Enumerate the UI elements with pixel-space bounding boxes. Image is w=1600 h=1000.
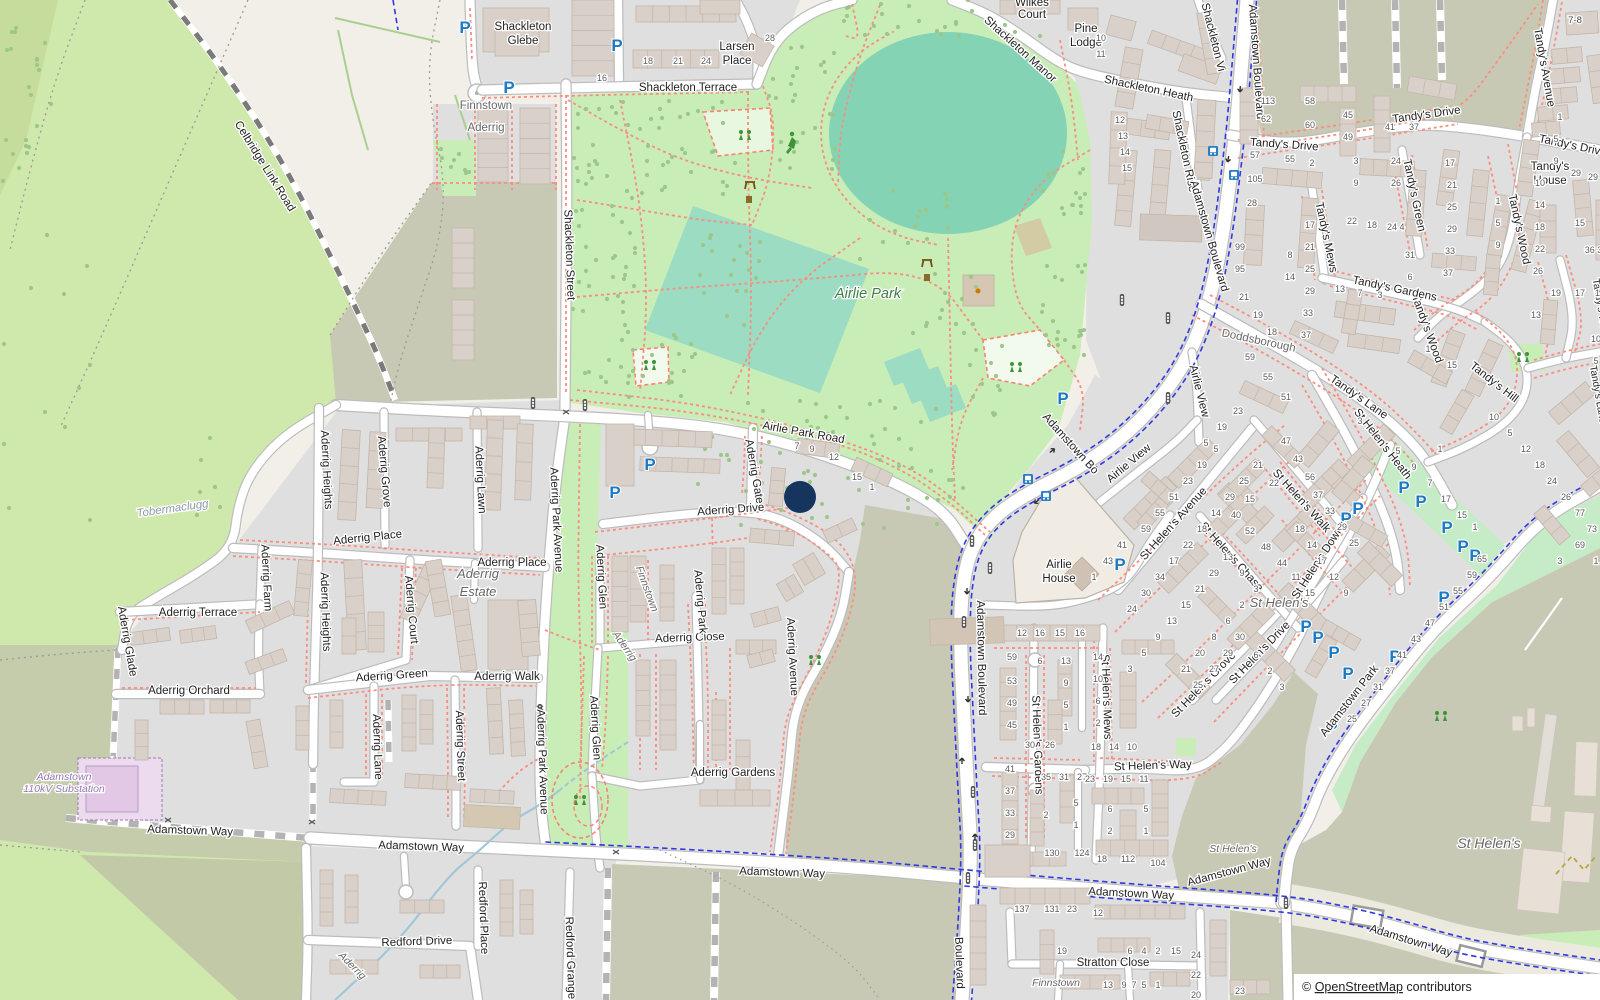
svg-text:29: 29 bbox=[1209, 568, 1219, 578]
svg-text:7: 7 bbox=[1131, 980, 1136, 990]
svg-text:Aderrig Walk: Aderrig Walk bbox=[474, 671, 540, 683]
svg-text:21: 21 bbox=[1181, 664, 1191, 674]
svg-text:19: 19 bbox=[1057, 946, 1067, 956]
svg-text:17: 17 bbox=[1305, 220, 1315, 230]
svg-text:21: 21 bbox=[1195, 584, 1205, 594]
svg-text:12: 12 bbox=[1521, 444, 1531, 454]
svg-text:55: 55 bbox=[1263, 372, 1273, 382]
svg-text:6: 6 bbox=[1037, 656, 1042, 666]
svg-text:69: 69 bbox=[1575, 540, 1585, 550]
svg-text:1: 1 bbox=[869, 482, 874, 492]
svg-text:Court: Court bbox=[1018, 9, 1047, 21]
svg-text:29: 29 bbox=[1005, 830, 1015, 840]
svg-text:29: 29 bbox=[1305, 286, 1315, 296]
svg-text:P: P bbox=[1441, 518, 1452, 537]
svg-text:29: 29 bbox=[1588, 172, 1598, 182]
svg-text:5: 5 bbox=[1213, 444, 1218, 454]
svg-text:29: 29 bbox=[1337, 522, 1347, 532]
svg-text:59: 59 bbox=[1467, 570, 1477, 580]
svg-text:15: 15 bbox=[1171, 946, 1181, 956]
svg-text:P: P bbox=[503, 78, 514, 97]
svg-text:22: 22 bbox=[1183, 540, 1193, 550]
svg-text:2: 2 bbox=[1107, 826, 1112, 836]
svg-text:22: 22 bbox=[1191, 970, 1201, 980]
svg-text:2: 2 bbox=[1267, 666, 1272, 676]
svg-text:40: 40 bbox=[1231, 510, 1241, 520]
svg-text:14: 14 bbox=[1109, 742, 1119, 752]
svg-text:St Helen's: St Helen's bbox=[1250, 595, 1309, 610]
svg-text:Aderrig: Aderrig bbox=[456, 566, 500, 581]
svg-text:55: 55 bbox=[1155, 508, 1165, 518]
svg-text:4: 4 bbox=[1399, 222, 1404, 232]
svg-text:12: 12 bbox=[1329, 572, 1339, 582]
svg-text:2: 2 bbox=[1095, 718, 1100, 728]
svg-text:P: P bbox=[1312, 628, 1323, 647]
svg-text:26: 26 bbox=[1561, 492, 1571, 502]
svg-text:14: 14 bbox=[1120, 147, 1130, 157]
svg-text:5: 5 bbox=[1063, 700, 1068, 710]
svg-text:37: 37 bbox=[1443, 268, 1453, 278]
svg-text:1: 1 bbox=[1143, 826, 1148, 836]
svg-text:Airlie: Airlie bbox=[1046, 559, 1072, 571]
svg-text:2: 2 bbox=[1239, 600, 1244, 610]
svg-text:St Helen's: St Helen's bbox=[1209, 843, 1257, 855]
svg-text:11: 11 bbox=[1096, 49, 1105, 59]
svg-text:131: 131 bbox=[1044, 904, 1059, 914]
svg-text:30: 30 bbox=[1141, 588, 1151, 598]
svg-text:18: 18 bbox=[1091, 742, 1101, 752]
svg-text:5: 5 bbox=[1203, 438, 1208, 448]
svg-text:3: 3 bbox=[1357, 416, 1362, 426]
svg-text:Larsen: Larsen bbox=[719, 41, 754, 53]
svg-text:28: 28 bbox=[765, 33, 775, 43]
svg-text:36 32: 36 32 bbox=[1585, 245, 1600, 255]
svg-text:24: 24 bbox=[1387, 222, 1397, 232]
svg-text:23: 23 bbox=[1235, 986, 1245, 996]
svg-text:15: 15 bbox=[1055, 628, 1065, 638]
svg-text:9: 9 bbox=[809, 444, 814, 454]
svg-text:1: 1 bbox=[1073, 820, 1078, 830]
svg-text:18: 18 bbox=[1267, 327, 1277, 337]
svg-text:15: 15 bbox=[1575, 218, 1585, 228]
svg-text:10: 10 bbox=[1127, 742, 1137, 752]
svg-text:95: 95 bbox=[1235, 264, 1245, 274]
svg-text:P: P bbox=[1457, 537, 1468, 556]
svg-text:P: P bbox=[1300, 617, 1311, 636]
svg-text:Place: Place bbox=[723, 55, 752, 67]
svg-text:24: 24 bbox=[701, 56, 711, 66]
svg-text:Pine: Pine bbox=[1074, 23, 1097, 35]
svg-text:14: 14 bbox=[1595, 288, 1600, 298]
svg-text:41: 41 bbox=[1385, 122, 1395, 132]
svg-text:25: 25 bbox=[1349, 538, 1359, 548]
svg-text:18: 18 bbox=[1535, 222, 1545, 232]
svg-text:15: 15 bbox=[1305, 588, 1315, 598]
svg-text:Aderrig: Aderrig bbox=[467, 122, 504, 134]
svg-text:35: 35 bbox=[1041, 772, 1051, 782]
svg-text:23: 23 bbox=[1067, 904, 1077, 914]
svg-text:5: 5 bbox=[1495, 218, 1500, 228]
svg-text:21: 21 bbox=[1239, 292, 1249, 302]
svg-text:3: 3 bbox=[1127, 664, 1132, 674]
svg-text:21: 21 bbox=[1253, 460, 1263, 470]
svg-text:9: 9 bbox=[1353, 178, 1358, 188]
svg-text:Adamstown Boulevard: Adamstown Boulevard bbox=[974, 600, 988, 715]
svg-text:9: 9 bbox=[1121, 980, 1126, 990]
svg-text:3: 3 bbox=[1377, 290, 1382, 300]
svg-text:13: 13 bbox=[1061, 656, 1071, 666]
svg-text:Shackleton: Shackleton bbox=[495, 21, 552, 33]
svg-text:16: 16 bbox=[1075, 628, 1085, 638]
svg-text:26: 26 bbox=[1045, 740, 1055, 750]
svg-text:10: 10 bbox=[1591, 334, 1600, 344]
svg-text:18: 18 bbox=[643, 56, 653, 66]
svg-text:7: 7 bbox=[1357, 288, 1362, 298]
svg-text:10: 10 bbox=[1093, 674, 1103, 684]
svg-text:6: 6 bbox=[1225, 616, 1230, 626]
svg-text:37: 37 bbox=[1409, 122, 1419, 132]
svg-text:St Helen's: St Helen's bbox=[1457, 835, 1520, 851]
svg-text:25: 25 bbox=[1305, 264, 1315, 274]
svg-text:13: 13 bbox=[1223, 552, 1233, 562]
svg-text:33: 33 bbox=[1303, 308, 1313, 318]
svg-text:29: 29 bbox=[1223, 648, 1233, 658]
svg-text:73: 73 bbox=[1587, 524, 1597, 534]
svg-text:30: 30 bbox=[1235, 632, 1245, 642]
svg-text:1: 1 bbox=[1495, 196, 1500, 206]
svg-text:10: 10 bbox=[1096, 33, 1106, 43]
svg-text:37: 37 bbox=[1301, 330, 1311, 340]
svg-text:13: 13 bbox=[1531, 310, 1541, 320]
svg-text:18: 18 bbox=[1097, 854, 1107, 864]
svg-text:37: 37 bbox=[1385, 666, 1395, 676]
svg-text:57: 57 bbox=[1250, 150, 1260, 160]
svg-text:17: 17 bbox=[1317, 556, 1327, 566]
svg-text:17: 17 bbox=[1441, 494, 1451, 504]
svg-text:3: 3 bbox=[1253, 584, 1258, 594]
svg-text:28: 28 bbox=[1247, 198, 1257, 208]
svg-text:3: 3 bbox=[1557, 556, 1562, 566]
svg-text:25: 25 bbox=[1447, 202, 1457, 212]
svg-text:Wilkes: Wilkes bbox=[1015, 0, 1049, 9]
svg-text:104: 104 bbox=[1150, 858, 1165, 868]
svg-text:3: 3 bbox=[1353, 156, 1358, 166]
svg-text:1: 1 bbox=[1472, 522, 1477, 532]
svg-text:19: 19 bbox=[1217, 422, 1227, 432]
svg-text:19: 19 bbox=[1197, 460, 1207, 470]
svg-text:23: 23 bbox=[1233, 406, 1243, 416]
svg-text:Estate: Estate bbox=[460, 584, 497, 599]
svg-text:21: 21 bbox=[1447, 180, 1457, 190]
svg-text:30: 30 bbox=[1025, 740, 1035, 750]
svg-text:27: 27 bbox=[1209, 664, 1219, 674]
svg-text:P: P bbox=[611, 36, 622, 55]
svg-text:2: 2 bbox=[1309, 158, 1314, 168]
svg-text:P: P bbox=[644, 455, 655, 474]
svg-text:23: 23 bbox=[1085, 774, 1095, 784]
svg-text:14: 14 bbox=[1211, 508, 1221, 518]
svg-text:14: 14 bbox=[1285, 272, 1295, 282]
svg-text:137: 137 bbox=[1014, 904, 1029, 914]
svg-text:18: 18 bbox=[1197, 524, 1207, 534]
svg-text:58: 58 bbox=[1305, 96, 1315, 106]
svg-text:41: 41 bbox=[1397, 650, 1407, 660]
svg-text:25: 25 bbox=[1347, 714, 1357, 724]
svg-text:14: 14 bbox=[1307, 540, 1317, 550]
svg-text:6: 6 bbox=[1407, 272, 1412, 282]
svg-text:13: 13 bbox=[1118, 131, 1128, 141]
svg-text:19: 19 bbox=[1103, 774, 1113, 784]
svg-text:Finnstown: Finnstown bbox=[460, 100, 512, 112]
svg-text:9: 9 bbox=[1553, 156, 1558, 166]
svg-text:25: 25 bbox=[1193, 680, 1203, 690]
svg-text:59: 59 bbox=[1141, 524, 1151, 534]
svg-text:45: 45 bbox=[1343, 110, 1353, 120]
svg-text:17: 17 bbox=[1575, 288, 1585, 298]
svg-text:5: 5 bbox=[1593, 356, 1598, 366]
svg-text:15: 15 bbox=[1245, 494, 1255, 504]
svg-text:Aderrig Close: Aderrig Close bbox=[655, 631, 725, 645]
svg-text:12: 12 bbox=[1115, 115, 1125, 125]
svg-text:9: 9 bbox=[1411, 462, 1416, 472]
svg-text:56: 56 bbox=[1305, 472, 1315, 482]
svg-text:49: 49 bbox=[1343, 132, 1353, 142]
svg-text:105: 105 bbox=[1247, 174, 1262, 184]
svg-text:8: 8 bbox=[1211, 632, 1216, 642]
svg-text:Boulevard: Boulevard bbox=[952, 937, 966, 989]
svg-text:23: 23 bbox=[1183, 476, 1193, 486]
svg-text:15: 15 bbox=[1447, 360, 1457, 370]
svg-text:29: 29 bbox=[1571, 168, 1581, 178]
svg-text:9: 9 bbox=[1063, 678, 1068, 688]
svg-text:P: P bbox=[1114, 555, 1125, 574]
svg-text:Airlie Park: Airlie Park bbox=[834, 286, 902, 302]
svg-text:31: 31 bbox=[1059, 772, 1069, 782]
svg-text:Aderrig Orchard: Aderrig Orchard bbox=[148, 685, 230, 697]
svg-text:41: 41 bbox=[1117, 540, 1127, 550]
svg-text:Stratton Close: Stratton Close bbox=[1077, 957, 1150, 969]
svg-text:37: 37 bbox=[1313, 490, 1323, 500]
svg-text:51: 51 bbox=[1169, 492, 1179, 502]
svg-text:22: 22 bbox=[1269, 478, 1279, 488]
svg-text:31: 31 bbox=[1405, 250, 1415, 260]
svg-text:7-8: 7-8 bbox=[1568, 15, 1582, 26]
svg-text:Redford Place: Redford Place bbox=[476, 881, 491, 954]
svg-text:15: 15 bbox=[1457, 510, 1467, 520]
svg-text:51: 51 bbox=[1439, 602, 1449, 612]
svg-text:124: 124 bbox=[1074, 848, 1089, 858]
svg-text:22: 22 bbox=[1535, 244, 1545, 254]
svg-text:14: 14 bbox=[1093, 652, 1103, 662]
svg-text:43: 43 bbox=[1293, 454, 1303, 464]
svg-text:59: 59 bbox=[1007, 652, 1017, 662]
svg-text:9: 9 bbox=[1239, 568, 1244, 578]
svg-text:Aderrig Terrace: Aderrig Terrace bbox=[159, 607, 237, 619]
svg-text:29: 29 bbox=[1225, 492, 1235, 502]
svg-text:Aderrig Street: Aderrig Street bbox=[453, 710, 467, 782]
svg-text:51: 51 bbox=[1281, 392, 1291, 402]
svg-text:21: 21 bbox=[673, 56, 683, 66]
svg-text:6: 6 bbox=[1127, 946, 1132, 956]
svg-text:27: 27 bbox=[1361, 698, 1371, 708]
svg-text:21: 21 bbox=[1305, 242, 1315, 252]
svg-text:7: 7 bbox=[794, 441, 799, 451]
svg-text:2: 2 bbox=[1155, 946, 1160, 956]
svg-text:P: P bbox=[1415, 492, 1426, 511]
svg-text:52: 52 bbox=[1245, 526, 1255, 536]
svg-text:1: 1 bbox=[1063, 722, 1068, 732]
svg-text:Redford Drive: Redford Drive bbox=[381, 935, 452, 949]
svg-text:62: 62 bbox=[1261, 114, 1271, 124]
svg-text:49: 49 bbox=[1007, 698, 1017, 708]
svg-text:45: 45 bbox=[1007, 720, 1017, 730]
svg-text:41: 41 bbox=[1005, 764, 1015, 774]
svg-text:6: 6 bbox=[1107, 804, 1112, 814]
svg-text:43: 43 bbox=[1411, 634, 1421, 644]
svg-text:5: 5 bbox=[1141, 648, 1146, 658]
svg-text:1: 1 bbox=[1425, 344, 1430, 354]
svg-text:12: 12 bbox=[829, 452, 839, 462]
svg-text:6: 6 bbox=[1095, 696, 1100, 706]
svg-text:13: 13 bbox=[1335, 284, 1345, 294]
svg-text:77: 77 bbox=[1575, 508, 1585, 518]
svg-text:P: P bbox=[1342, 664, 1353, 683]
svg-text:© OpenStreetMap contributors: © OpenStreetMap contributors bbox=[1302, 980, 1472, 994]
svg-text:53: 53 bbox=[1007, 676, 1017, 686]
svg-text:55: 55 bbox=[1285, 154, 1295, 164]
svg-text:34: 34 bbox=[1155, 572, 1165, 582]
svg-text:Aderrig Gardens: Aderrig Gardens bbox=[691, 767, 776, 779]
svg-text:P: P bbox=[1352, 499, 1363, 518]
svg-text:17: 17 bbox=[1445, 158, 1455, 168]
svg-text:Adamstown: Adamstown bbox=[36, 771, 92, 783]
svg-text:24: 24 bbox=[1127, 604, 1137, 614]
svg-text:4: 4 bbox=[1141, 946, 1146, 956]
svg-text:18: 18 bbox=[1367, 220, 1377, 230]
svg-text:13: 13 bbox=[1167, 616, 1177, 626]
svg-text:19: 19 bbox=[1551, 288, 1561, 298]
svg-text:16: 16 bbox=[597, 73, 607, 83]
svg-text:130: 130 bbox=[1044, 848, 1059, 858]
svg-text:10: 10 bbox=[1535, 178, 1545, 188]
svg-text:22: 22 bbox=[1347, 216, 1357, 226]
svg-text:7: 7 bbox=[1427, 478, 1432, 488]
svg-text:Shackleton Terrace: Shackleton Terrace bbox=[639, 82, 737, 94]
svg-text:3: 3 bbox=[1279, 682, 1284, 692]
svg-text:16: 16 bbox=[1035, 628, 1045, 638]
svg-text:113: 113 bbox=[1261, 96, 1275, 106]
svg-text:12: 12 bbox=[1093, 908, 1103, 918]
svg-text:59: 59 bbox=[1245, 352, 1255, 362]
svg-text:10: 10 bbox=[1489, 412, 1499, 422]
svg-text:29: 29 bbox=[1447, 224, 1457, 234]
svg-text:Tandy's: Tandy's bbox=[1531, 161, 1570, 173]
svg-text:112: 112 bbox=[1121, 854, 1135, 864]
svg-text:99: 99 bbox=[1235, 242, 1245, 252]
svg-text:47: 47 bbox=[1281, 436, 1291, 446]
svg-text:Glebe: Glebe bbox=[508, 35, 539, 47]
svg-text:13: 13 bbox=[1103, 980, 1113, 990]
svg-text:31: 31 bbox=[1373, 682, 1383, 692]
svg-text:14: 14 bbox=[1535, 200, 1545, 210]
svg-text:26: 26 bbox=[1391, 178, 1401, 188]
svg-text:110kV Substation: 110kV Substation bbox=[23, 783, 105, 795]
svg-text:19: 19 bbox=[1253, 310, 1263, 320]
svg-text:17: 17 bbox=[1169, 556, 1179, 566]
svg-text:1: 1 bbox=[1091, 572, 1096, 582]
svg-text:15: 15 bbox=[1121, 774, 1131, 784]
svg-text:5: 5 bbox=[1143, 804, 1148, 814]
svg-text:24: 24 bbox=[1191, 950, 1201, 960]
svg-text:5: 5 bbox=[1553, 134, 1558, 144]
svg-text:1: 1 bbox=[1155, 980, 1160, 990]
svg-text:2: 2 bbox=[1043, 810, 1048, 820]
svg-text:House: House bbox=[1042, 573, 1075, 585]
svg-text:8: 8 bbox=[1287, 250, 1292, 260]
svg-text:15: 15 bbox=[852, 472, 862, 482]
svg-text:Aderrig Lane: Aderrig Lane bbox=[370, 714, 384, 780]
svg-text:P: P bbox=[1328, 643, 1339, 662]
svg-text:P: P bbox=[609, 483, 620, 502]
svg-text:15: 15 bbox=[1122, 163, 1132, 173]
svg-text:65: 65 bbox=[1477, 554, 1487, 564]
svg-text:6: 6 bbox=[1253, 650, 1258, 660]
svg-text:11: 11 bbox=[1291, 572, 1300, 582]
svg-text:47: 47 bbox=[1425, 618, 1435, 628]
svg-text:Finnstown: Finnstown bbox=[1032, 977, 1080, 989]
svg-text:60: 60 bbox=[1305, 120, 1315, 130]
svg-text:33: 33 bbox=[1445, 246, 1455, 256]
svg-text:55: 55 bbox=[1453, 586, 1463, 596]
svg-text:1: 1 bbox=[1557, 112, 1562, 122]
svg-text:9: 9 bbox=[1155, 632, 1160, 642]
svg-text:25: 25 bbox=[1239, 476, 1249, 486]
svg-text:24: 24 bbox=[1547, 476, 1557, 486]
svg-text:5: 5 bbox=[1507, 428, 1512, 438]
svg-text:11: 11 bbox=[1139, 774, 1148, 784]
svg-text:18: 18 bbox=[1295, 524, 1305, 534]
svg-text:5: 5 bbox=[1141, 980, 1146, 990]
svg-text:20: 20 bbox=[1191, 990, 1201, 1000]
svg-text:44: 44 bbox=[1277, 558, 1287, 568]
svg-text:24: 24 bbox=[1391, 156, 1401, 166]
svg-text:26: 26 bbox=[1533, 266, 1543, 276]
svg-text:12: 12 bbox=[1017, 628, 1027, 638]
svg-text:9: 9 bbox=[1343, 588, 1348, 598]
svg-text:1: 1 bbox=[1437, 444, 1442, 454]
svg-text:P: P bbox=[459, 18, 470, 37]
svg-text:33: 33 bbox=[1005, 808, 1015, 818]
svg-text:9: 9 bbox=[1495, 240, 1500, 250]
svg-text:5: 5 bbox=[1395, 446, 1400, 456]
svg-text:37: 37 bbox=[1005, 786, 1015, 796]
svg-text:20: 20 bbox=[1195, 648, 1205, 658]
svg-text:48: 48 bbox=[1261, 542, 1271, 552]
svg-text:43: 43 bbox=[1103, 556, 1113, 566]
svg-text:1: 1 bbox=[1593, 556, 1598, 566]
svg-text:15: 15 bbox=[1181, 600, 1191, 610]
svg-text:P: P bbox=[1057, 389, 1068, 408]
svg-text:18: 18 bbox=[1535, 460, 1545, 470]
svg-text:5: 5 bbox=[1073, 798, 1078, 808]
svg-text:33: 33 bbox=[1325, 506, 1335, 516]
